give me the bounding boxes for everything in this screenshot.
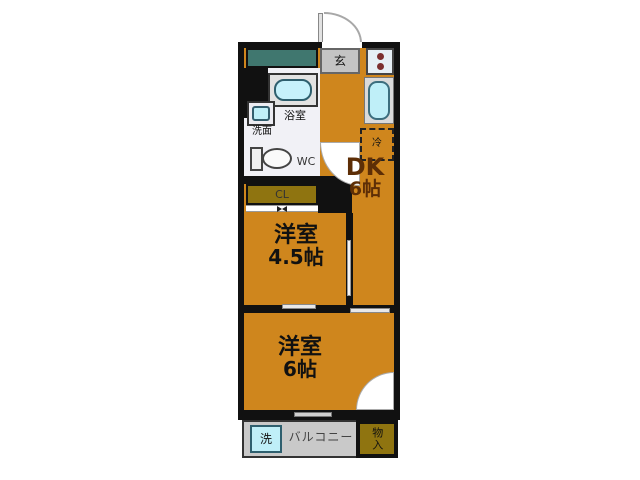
washer-space: 洗 bbox=[250, 425, 282, 453]
room-a-size: 4.5帖 bbox=[244, 247, 348, 268]
rooms-sliding-door-panel bbox=[282, 304, 316, 309]
slide-arrow-icon bbox=[282, 206, 287, 212]
room-b-size: 6帖 bbox=[240, 359, 360, 380]
wc-label: WC bbox=[290, 156, 322, 168]
floorplan-canvas: 玄 冷 浴室 洗面 WC DK 6帖 CL 洋室 4 bbox=[0, 0, 640, 480]
bathtub-icon bbox=[268, 73, 318, 107]
room-a-label: 洋室 4.5帖 bbox=[244, 224, 348, 268]
dk-label: DK 6帖 bbox=[336, 155, 394, 200]
kitchen-sink-icon bbox=[364, 77, 394, 124]
stove-burner-dot bbox=[377, 53, 384, 60]
room-b-label: 洋室 6帖 bbox=[240, 336, 360, 380]
washer-label: 洗 bbox=[260, 433, 272, 446]
storage-label: 物入 bbox=[371, 427, 383, 451]
room-a-name: 洋室 bbox=[244, 224, 348, 247]
closet-sliding-door bbox=[246, 205, 318, 212]
entrance-label: 玄 bbox=[334, 55, 346, 68]
sink-basin bbox=[368, 81, 390, 120]
stove-icon bbox=[366, 48, 394, 75]
balcony-label: バルコニー bbox=[286, 431, 356, 444]
rooms-sliding-door-panel bbox=[350, 308, 390, 313]
bath-label: 浴室 bbox=[270, 110, 320, 122]
dk-name: DK bbox=[336, 155, 394, 180]
fridge-label: 冷 bbox=[372, 139, 382, 150]
wall-under-bathroom bbox=[244, 176, 320, 184]
entrance-door-arc bbox=[324, 12, 362, 43]
entrance-area: 玄 bbox=[320, 48, 360, 74]
toilet-icon-bowl bbox=[262, 148, 292, 169]
balcony-window bbox=[294, 412, 332, 417]
entrance-door-panel bbox=[318, 13, 323, 43]
shoe-cabinet bbox=[246, 48, 318, 68]
washbasin-bowl bbox=[252, 106, 270, 121]
dk-size: 6帖 bbox=[336, 180, 394, 200]
closet-label: CL bbox=[275, 189, 289, 201]
wall-right bbox=[394, 42, 400, 420]
bathtub-basin bbox=[274, 79, 312, 101]
storage-box: 物入 bbox=[356, 420, 398, 458]
room-a-sliding-door bbox=[347, 240, 351, 296]
room-b-name: 洋室 bbox=[240, 336, 360, 359]
washbasin-icon bbox=[247, 101, 275, 126]
closet-box: CL bbox=[246, 184, 318, 205]
stove-burner-dot bbox=[377, 63, 384, 70]
washbasin-label: 洗面 bbox=[240, 127, 284, 138]
